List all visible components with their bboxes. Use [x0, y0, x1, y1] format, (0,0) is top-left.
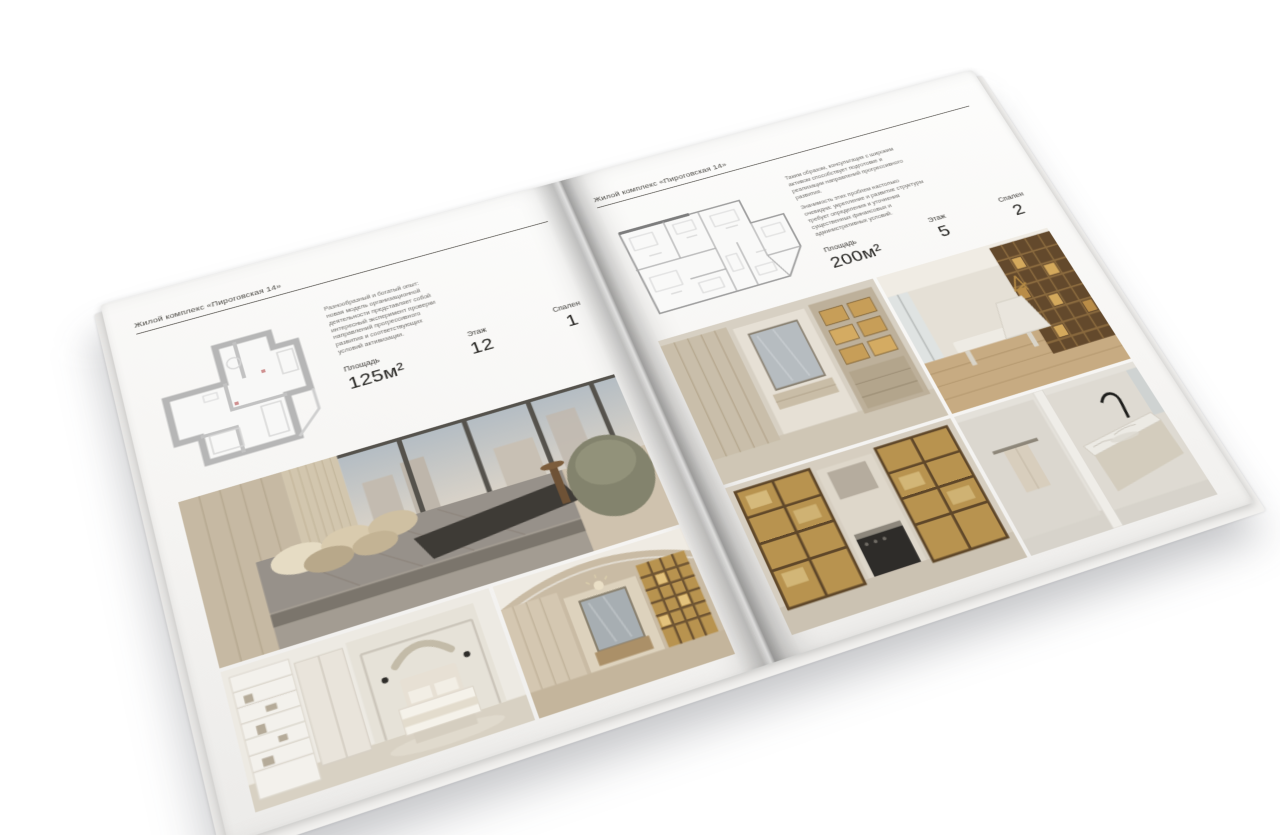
- spec-bedrooms: Спален 1: [551, 299, 590, 333]
- spec-floor-value: 5: [935, 222, 955, 241]
- spec-floor: Этаж 12: [464, 325, 497, 359]
- spec-bedrooms-label: Спален: [996, 190, 1025, 204]
- spec-floor-value: 12: [468, 334, 497, 358]
- mockup-scene: Жилой комплекс «Пироговская 14»: [0, 0, 1280, 835]
- spec-area: Площадь 125м²: [343, 350, 408, 394]
- spec-area: Площадь 200м²: [822, 232, 886, 272]
- spec-bedrooms-value: 1: [563, 310, 581, 331]
- floor-plan-125-icon: [142, 310, 350, 486]
- spec-bedrooms: Спален 2: [996, 190, 1036, 221]
- spec-bedrooms-value: 2: [1009, 200, 1029, 219]
- spec-floor: Этаж 5: [926, 212, 958, 242]
